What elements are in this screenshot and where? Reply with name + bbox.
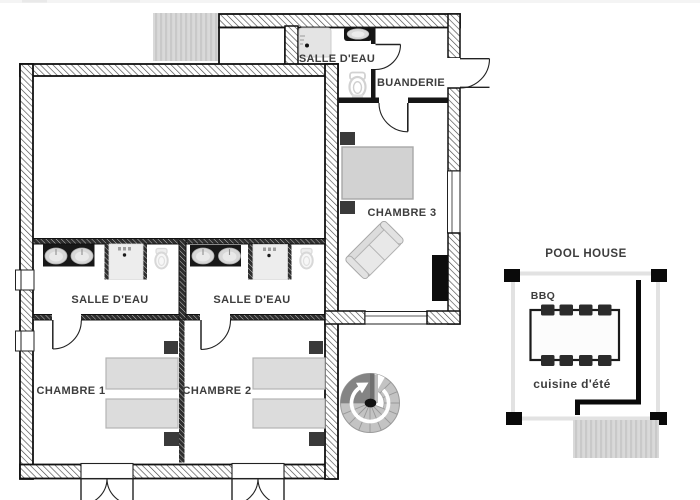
- svg-text:CHAMBRE 3: CHAMBRE 3: [368, 207, 437, 219]
- svg-text:cuisine d'été: cuisine d'été: [533, 377, 610, 391]
- svg-text:BUANDERIE: BUANDERIE: [377, 77, 445, 89]
- svg-text:SALLE D'EAU: SALLE D'EAU: [299, 53, 375, 65]
- svg-text:SALLE D'EAU: SALLE D'EAU: [71, 294, 148, 306]
- svg-text:SALLE D'EAU: SALLE D'EAU: [213, 294, 290, 306]
- svg-text:CHAMBRE 1: CHAMBRE 1: [37, 385, 106, 397]
- svg-text:CHAMBRE 2: CHAMBRE 2: [183, 385, 252, 397]
- svg-text:BBQ: BBQ: [531, 290, 556, 302]
- svg-text:POOL HOUSE: POOL HOUSE: [545, 248, 626, 260]
